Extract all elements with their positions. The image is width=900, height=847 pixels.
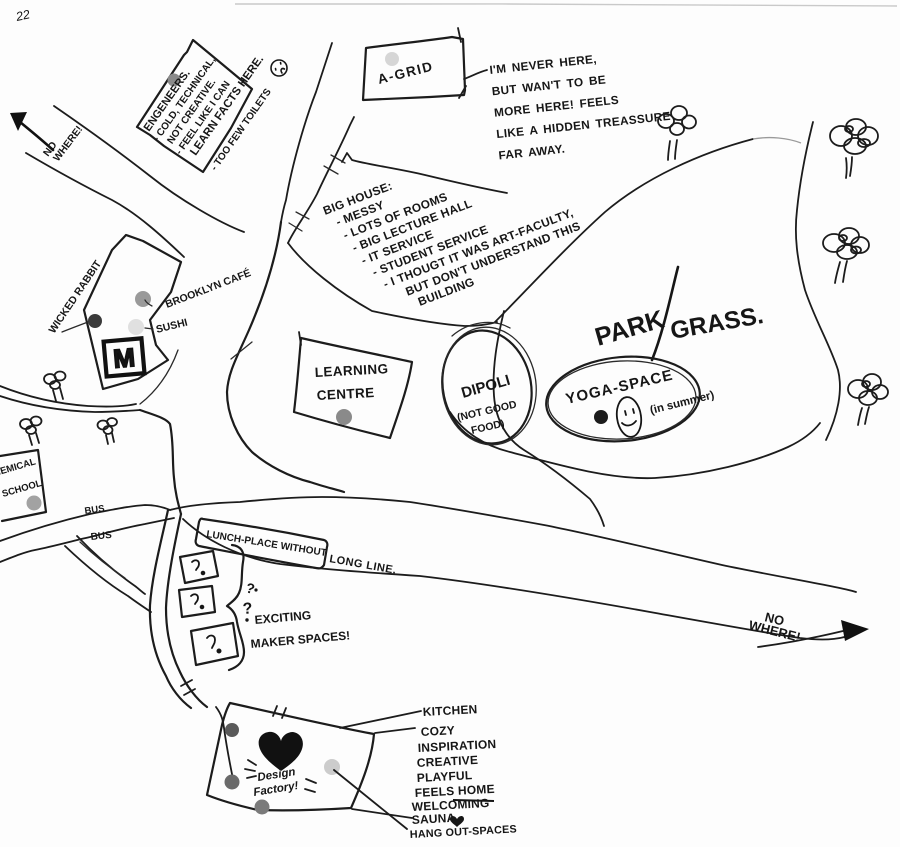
svg-text:?: ? [242,600,253,618]
svg-text:SAUNA: SAUNA [411,811,455,827]
svg-text:CENTRE: CENTRE [316,385,375,403]
svg-text:BUS: BUS [90,530,112,543]
svg-text:M: M [112,342,136,374]
svg-text:COZY: COZY [420,723,455,739]
svg-text:KITCHEN: KITCHEN [422,702,477,719]
